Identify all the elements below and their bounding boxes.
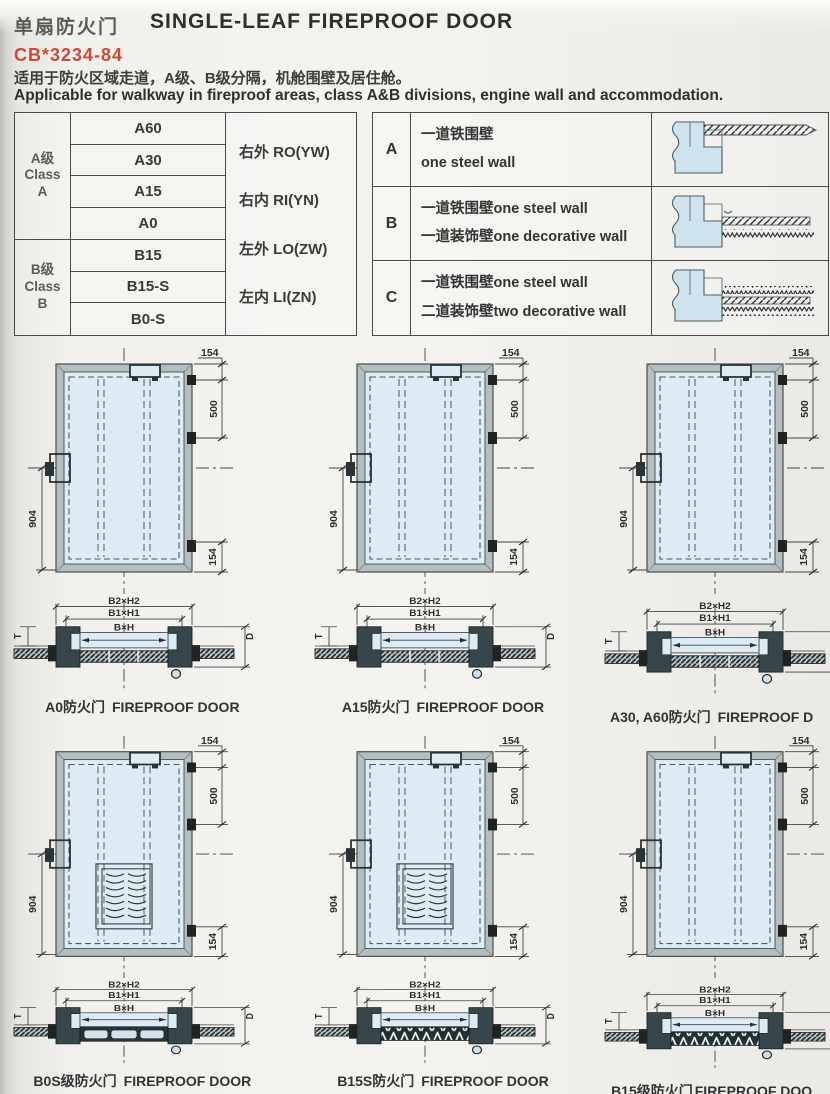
wall-row-c-diagram bbox=[652, 261, 828, 335]
caption-a0: A0防火门FIREPROOF DOOR bbox=[45, 697, 239, 717]
class-table: A级 Class A B级 Class B A60 A30 A15 A0 B15… bbox=[14, 112, 357, 336]
orientation-li: 左内 LI(ZN) bbox=[239, 286, 356, 307]
orientation-ri: 右内 RI(YN) bbox=[239, 189, 356, 210]
caption-a15: A15防火门FIREPROOF DOOR bbox=[342, 697, 544, 717]
wall-row-c-key: C bbox=[373, 261, 411, 335]
class-a-cell: A级 Class A bbox=[15, 113, 71, 240]
rating-a30: A30 bbox=[71, 145, 226, 177]
caption-b15s: B15S防火门FIREPROOF DOOR bbox=[337, 1071, 549, 1091]
wall-type-table: A 一道铁围壁 one steel wall B 一道铁围壁one steel … bbox=[372, 112, 829, 336]
one-steel-wall-diagram bbox=[658, 117, 823, 183]
wall-row-b-diagram bbox=[652, 187, 828, 261]
page-title-cn: 单扇防火门 bbox=[14, 12, 119, 39]
door-section-a15 bbox=[311, 596, 575, 694]
wall-row-b-text: 一道铁围壁one steel wall 一道装饰壁one decorative … bbox=[411, 187, 652, 261]
page-title-en: SINGLE-LEAF FIREPROOF DOOR bbox=[150, 10, 513, 34]
rating-b15: B15 bbox=[71, 240, 226, 272]
wall-row-a-text: 一道铁围壁 one steel wall bbox=[411, 113, 652, 187]
wall-row-a-key: A bbox=[373, 113, 411, 187]
wall-row-b-key: B bbox=[373, 187, 411, 261]
rating-a0: A0 bbox=[71, 208, 226, 240]
figure-b15: B15级防火门FIREPROOF DOO bbox=[553, 734, 830, 1094]
catalog-page: 单扇防火门 SINGLE-LEAF FIREPROOF DOOR CB*3234… bbox=[0, 0, 830, 1094]
caption-b15: B15级防火门FIREPROOF DOO bbox=[611, 1081, 812, 1094]
figure-a30-a60: A30, A60防火门FIREPROOF D bbox=[553, 346, 830, 727]
rating-a15: A15 bbox=[71, 176, 226, 208]
caption-a30-a60: A30, A60防火门FIREPROOF D bbox=[610, 707, 813, 727]
figure-row-2: B0S级防火门FIREPROOF DOOR B15S防火门FIREPROOF D… bbox=[0, 734, 830, 1094]
door-section-a30-a60 bbox=[601, 601, 830, 699]
door-section-b15s bbox=[311, 980, 575, 1068]
class-b-cell: B级 Class B bbox=[15, 240, 71, 335]
door-section-a0 bbox=[10, 596, 274, 694]
door-elevation-b15s bbox=[311, 734, 575, 980]
description-cn: 适用于防火区域走道，A级、B级分隔，机舱围壁及居住舱。 bbox=[14, 67, 411, 88]
figure-a0: A0防火门FIREPROOF DOOR bbox=[4, 346, 281, 727]
door-elevation-a0 bbox=[10, 346, 274, 596]
door-section-b15 bbox=[601, 985, 830, 1073]
figure-a15: A15防火门FIREPROOF DOOR bbox=[305, 346, 582, 727]
door-elevation-a30-a60 bbox=[601, 346, 830, 596]
caption-b0s: B0S级防火门FIREPROOF DOOR bbox=[33, 1071, 251, 1091]
figure-row-1: A0防火门FIREPROOF DOOR A15防火门FIREPROOF DOOR… bbox=[0, 346, 830, 727]
figure-b15s: B15S防火门FIREPROOF DOOR bbox=[305, 734, 582, 1094]
orientation-ro: 右外 RO(YW) bbox=[239, 141, 356, 162]
orientation-lo: 左外 LO(ZW) bbox=[239, 238, 356, 259]
door-section-b0s bbox=[10, 980, 274, 1068]
figure-a30-a60-drawings bbox=[601, 346, 830, 704]
steel-plus-two-decorative-walls-diagram bbox=[658, 265, 823, 331]
door-elevation-b0s bbox=[10, 734, 274, 980]
door-elevation-a15 bbox=[311, 346, 575, 596]
rating-a60: A60 bbox=[71, 113, 226, 145]
description-en: Applicable for walkway in fireproof area… bbox=[14, 87, 723, 105]
figure-b0s: B0S级防火门FIREPROOF DOOR bbox=[4, 734, 281, 1094]
rating-b15s: B15-S bbox=[71, 272, 226, 304]
rating-b0s: B0-S bbox=[71, 303, 226, 335]
orientation-cell: 右外 RO(YW) 右内 RI(YN) 左外 LO(ZW) 左内 LI(ZN) bbox=[226, 113, 356, 335]
wall-row-a-diagram bbox=[652, 113, 828, 187]
door-elevation-b15 bbox=[601, 734, 830, 980]
figure-b15-drawings bbox=[601, 734, 830, 1078]
standard-number: CB*3234-84 bbox=[14, 45, 123, 66]
steel-plus-decorative-wall-diagram bbox=[658, 191, 823, 257]
wall-row-c-text: 一道铁围壁one steel wall 二道装饰壁two decorative … bbox=[411, 261, 652, 335]
